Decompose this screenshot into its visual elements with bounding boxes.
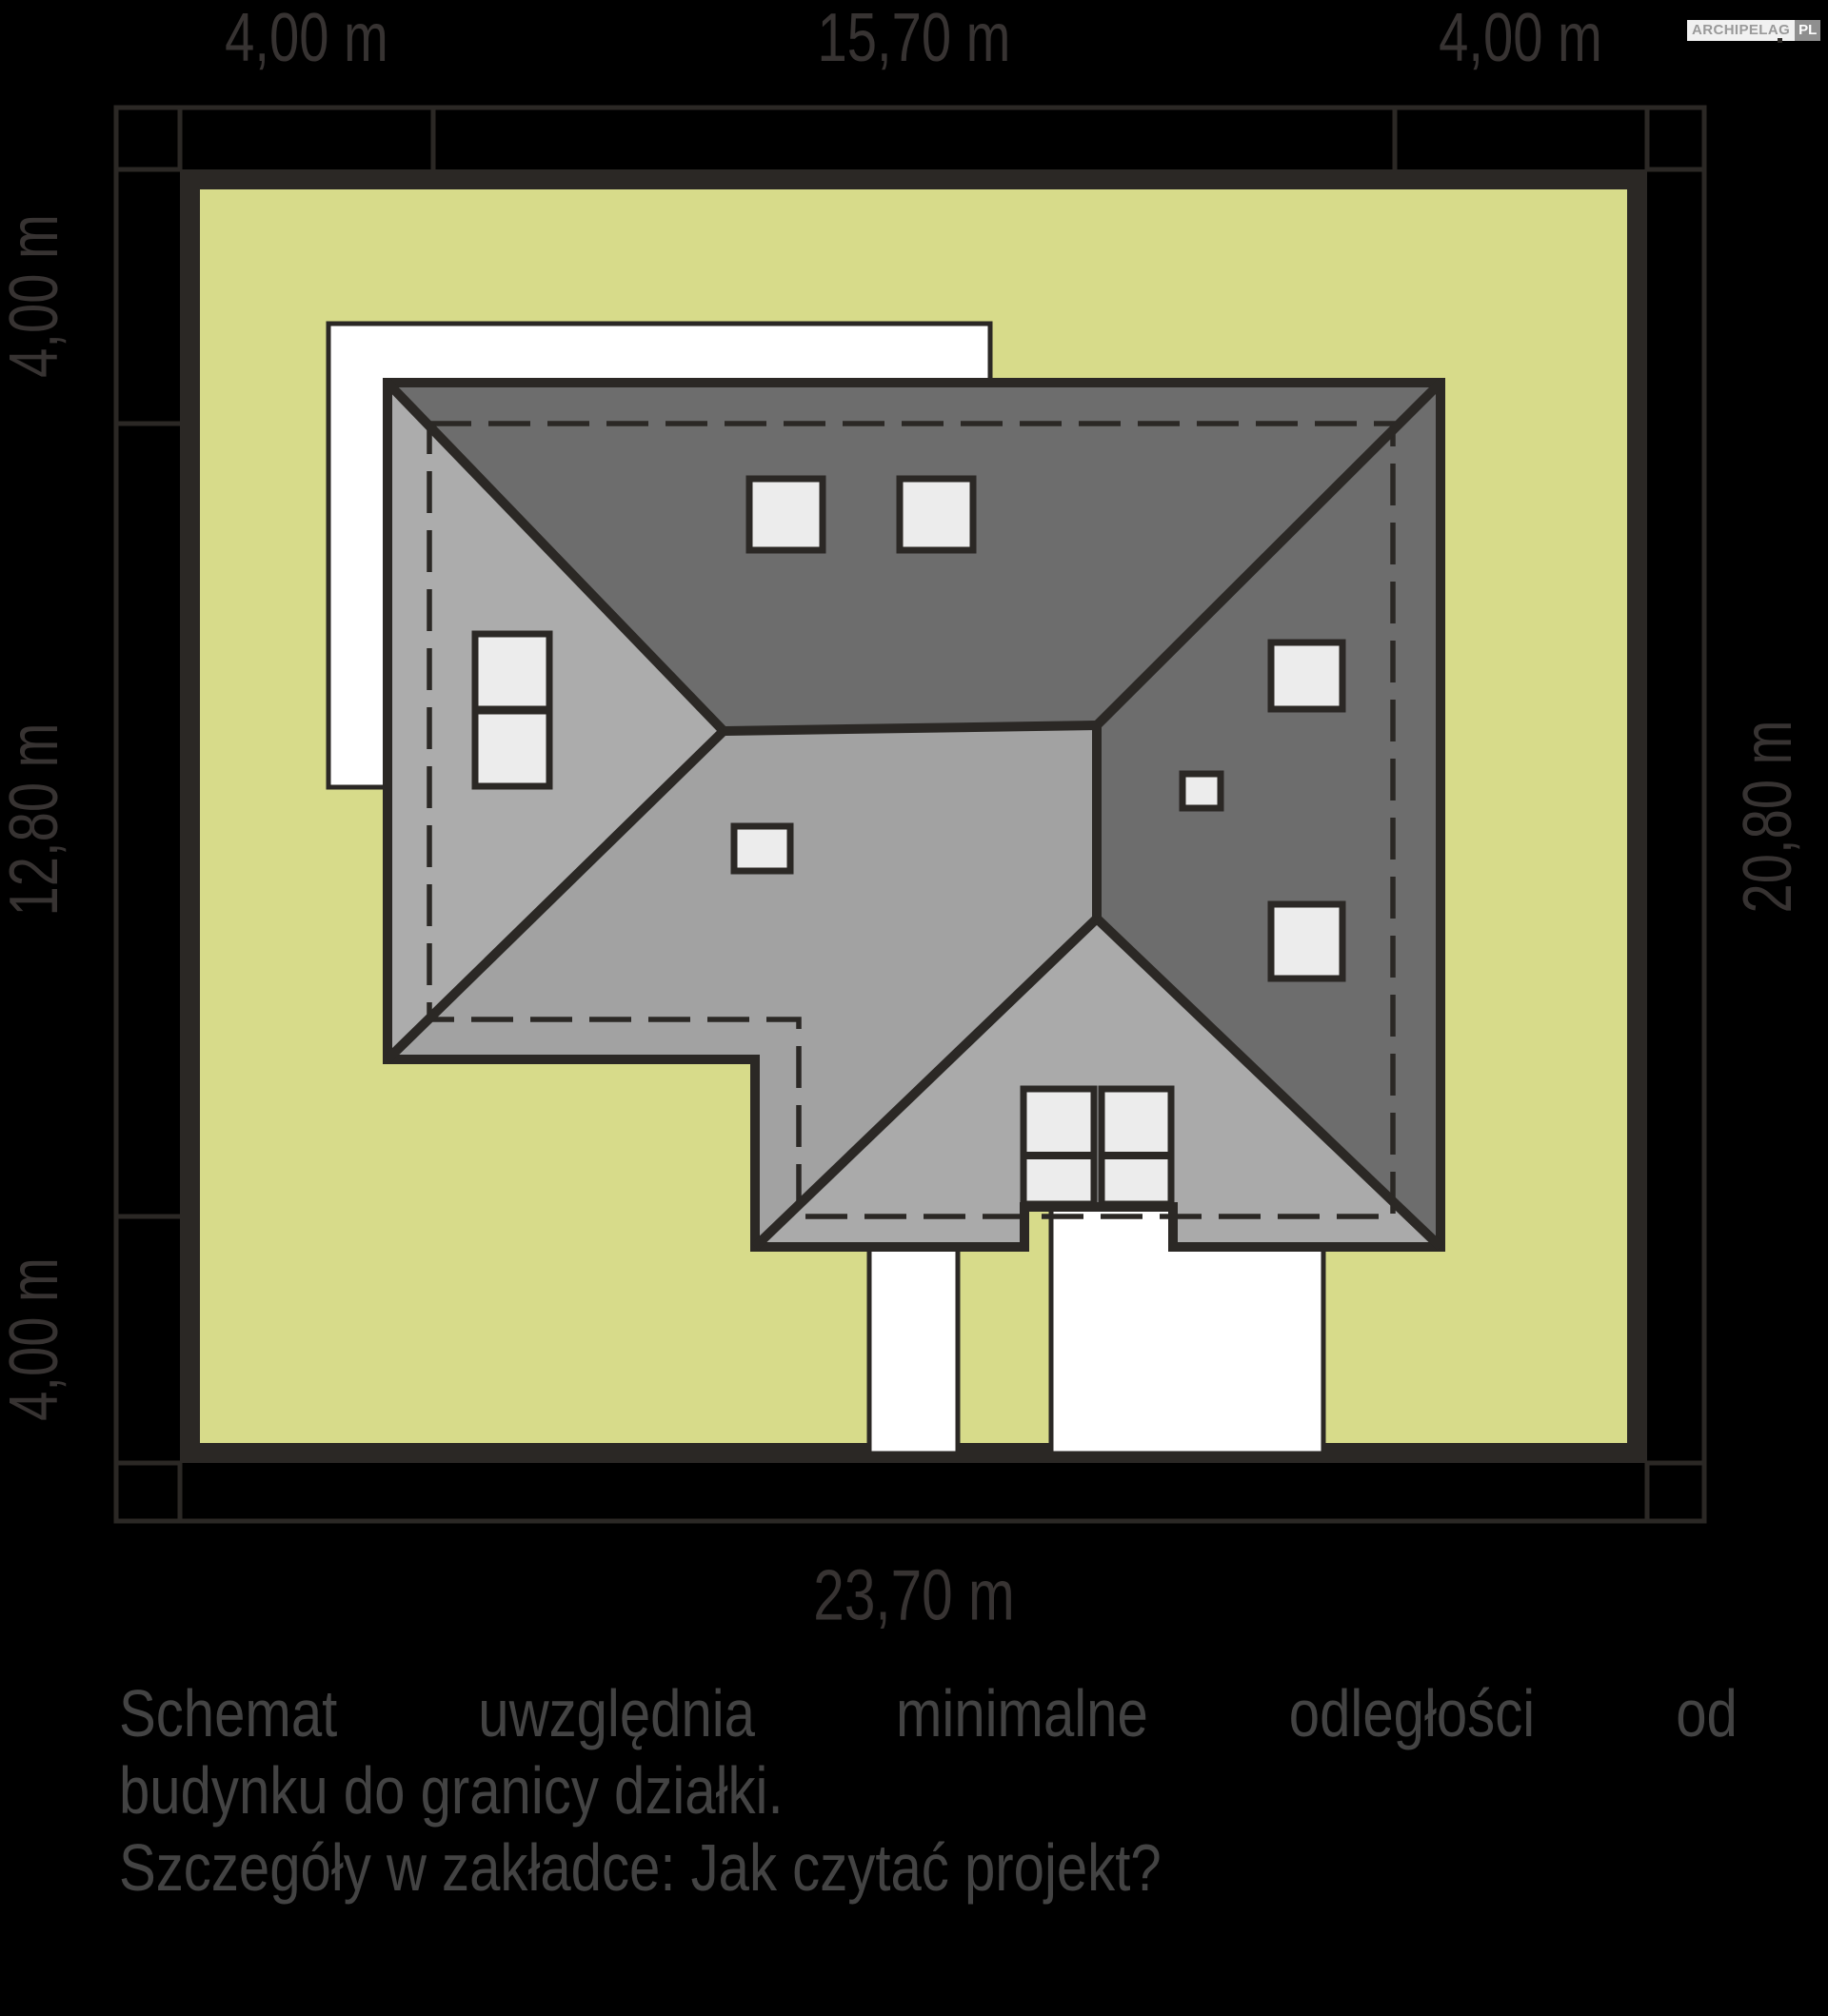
note-line-3: Szczegóły w zakładce: Jak czytać projekt… [119, 1831, 1162, 1905]
dim-label-top-left: 4,00 m [225, 4, 388, 72]
dim-label-right: 20,80 m [1734, 721, 1802, 914]
roof-ridge [724, 725, 1097, 731]
logo-pl-badge: PL [1795, 20, 1820, 41]
dim-label-bottom: 23,70 m [813, 1560, 1014, 1631]
walkway [869, 1247, 958, 1453]
dim-label-left-middle: 12,80 m [0, 723, 69, 917]
note-line-1: Schemat uwzględnia minimalne odległości … [119, 1677, 1738, 1750]
roof-window-front-left-sash [1023, 1089, 1094, 1204]
roof-window-front-right-sash [1102, 1089, 1171, 1204]
dim-label-left-bottom: 4,00 m [0, 1257, 69, 1421]
dim-label-top-right: 4,00 m [1439, 4, 1602, 72]
roof-window-east-bottom [1271, 904, 1342, 978]
dim-label-top-center: 15,70 m [818, 4, 1011, 72]
logo-dot [1778, 38, 1782, 43]
roof-window-east-top [1271, 642, 1342, 709]
roof-window-east-small [1182, 774, 1221, 808]
roof-window-north-2 [900, 479, 973, 550]
site-plan-page: 4,00 m 15,70 m 4,00 m 4,00 m 12,80 m 4,0… [0, 0, 1828, 2016]
roof-window-north-1 [749, 479, 823, 550]
roof-window-south-small [734, 826, 790, 871]
roof-window-west-upper [475, 634, 549, 709]
roof-window-west-lower [475, 711, 549, 786]
archipelag-logo: ARCHIPELAG PL [1687, 20, 1820, 41]
dim-label-left-top: 4,00 m [0, 214, 69, 378]
note-line-2: budynku do granicy działki. [119, 1754, 784, 1828]
